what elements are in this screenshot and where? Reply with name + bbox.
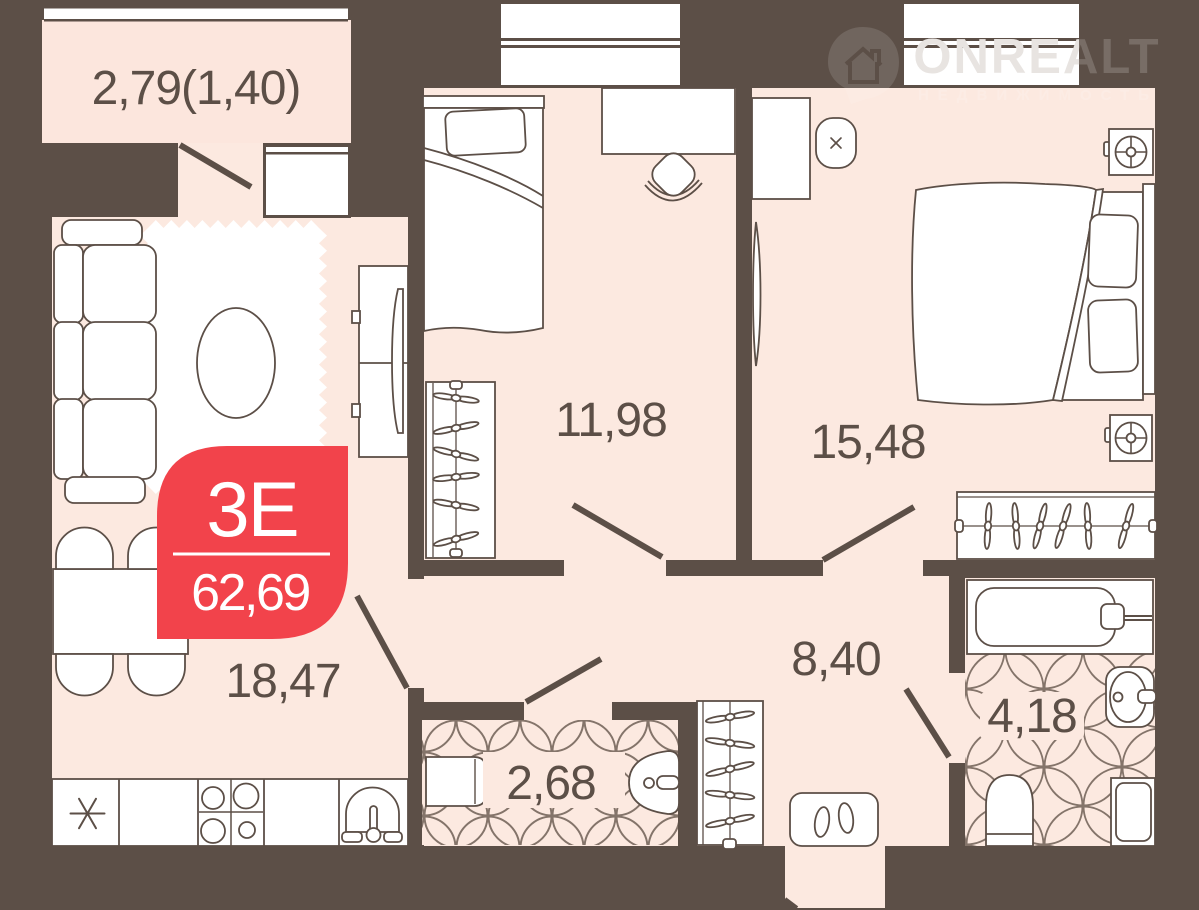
svg-text:18,47: 18,47 (225, 655, 340, 708)
svg-text:4,18: 4,18 (987, 690, 1076, 743)
svg-text:11,98: 11,98 (555, 394, 667, 447)
svg-text:3E: 3E (206, 465, 297, 553)
svg-text:НЕДВИЖИМОСТЬ: НЕДВИЖИМОСТЬ (918, 87, 1158, 104)
svg-text:62,69: 62,69 (191, 564, 309, 622)
svg-text:2,79(1,40): 2,79(1,40) (92, 62, 301, 115)
svg-text:15,48: 15,48 (810, 416, 925, 469)
svg-text:2,68: 2,68 (506, 757, 595, 810)
svg-text:8,40: 8,40 (791, 633, 880, 686)
